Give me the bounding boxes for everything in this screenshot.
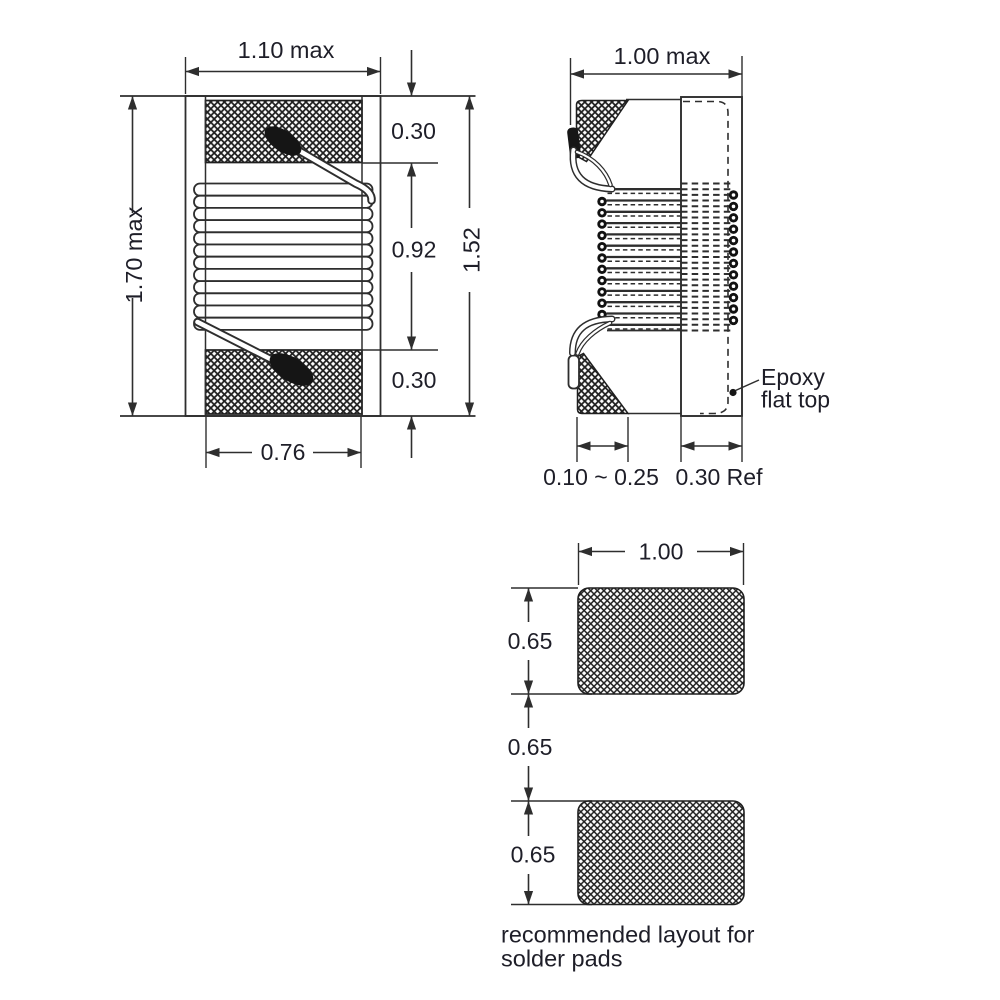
svg-text:1.52: 1.52 [459,227,485,273]
svg-text:0.30: 0.30 [392,367,437,393]
svg-text:0.30: 0.30 [391,118,436,144]
svg-text:1.00 max: 1.00 max [614,43,711,69]
svg-text:solder pads: solder pads [501,946,623,972]
svg-text:recommended layout for: recommended layout for [501,922,755,948]
svg-text:0.65: 0.65 [511,842,556,868]
svg-text:0.10 ~ 0.25: 0.10 ~ 0.25 [543,464,659,490]
svg-text:0.92: 0.92 [392,237,437,263]
svg-text:0.30 Ref: 0.30 Ref [676,464,764,490]
svg-text:0.65: 0.65 [508,734,553,760]
svg-text:1.70 max: 1.70 max [121,206,147,303]
svg-text:flat top: flat top [761,387,830,413]
svg-text:0.76: 0.76 [261,439,306,465]
svg-text:0.65: 0.65 [508,628,553,654]
svg-text:1.00: 1.00 [639,539,684,565]
svg-text:1.10 max: 1.10 max [238,37,335,63]
